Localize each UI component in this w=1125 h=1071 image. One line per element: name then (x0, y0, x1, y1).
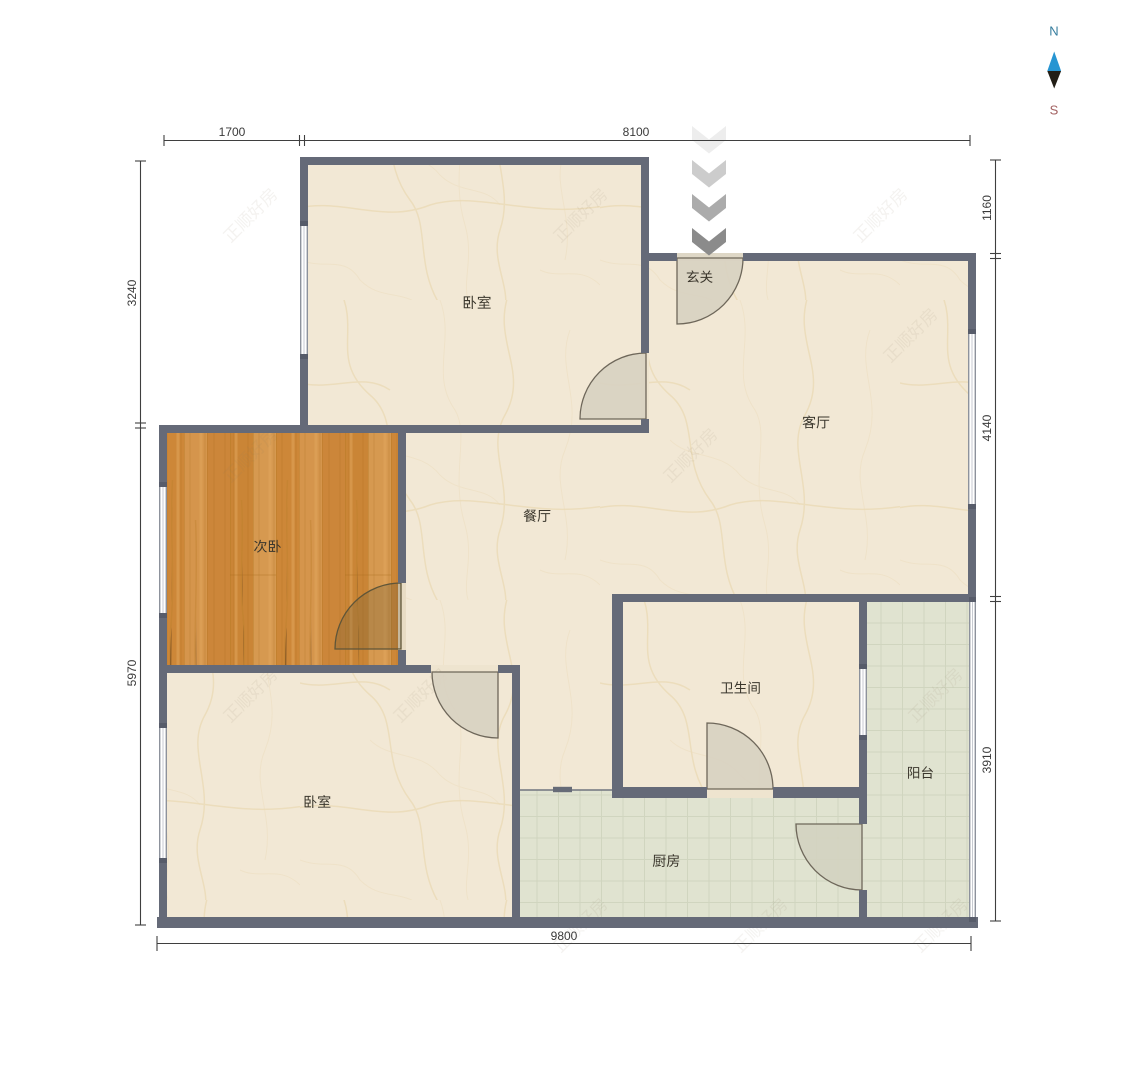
svg-text:8100: 8100 (623, 125, 650, 139)
svg-text:5970: 5970 (125, 659, 139, 686)
svg-text:9800: 9800 (551, 929, 578, 943)
svg-text:3240: 3240 (125, 279, 139, 306)
svg-text:S: S (1050, 103, 1059, 118)
svg-text:4140: 4140 (980, 414, 994, 441)
svg-text:1160: 1160 (980, 195, 994, 221)
svg-text:3910: 3910 (980, 746, 994, 773)
svg-text:N: N (1049, 24, 1058, 39)
svg-text:1700: 1700 (219, 125, 246, 139)
